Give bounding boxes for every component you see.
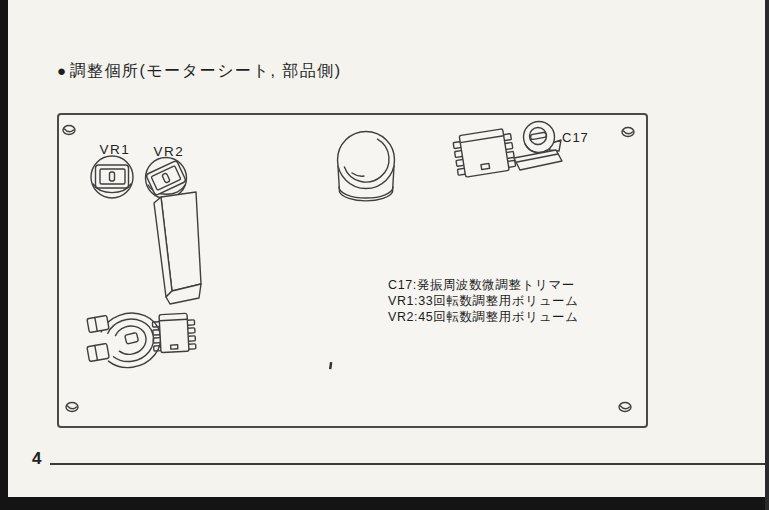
page-number: 4 <box>32 449 41 469</box>
board-diagram: VR1 VR2 C17 <box>0 0 769 510</box>
scan-edge-left <box>0 0 8 510</box>
mounting-hole-top-right <box>622 128 634 137</box>
component-trimmer-c17 <box>524 122 562 153</box>
vr2-label: VR2 <box>154 144 185 159</box>
note-vr2: VR2:45回転数調整用ボリューム <box>388 309 579 325</box>
mounting-hole-bottom-left <box>66 403 78 412</box>
scan-edge-bottom <box>0 497 769 510</box>
component-capacitor <box>338 132 395 201</box>
c17-label: C17 <box>562 130 589 145</box>
scan-edge-right <box>765 0 769 510</box>
vr1-label: VR1 <box>100 142 131 157</box>
component-ic-1 <box>452 128 516 179</box>
vr1-potentiometer <box>91 156 133 198</box>
footer-rule <box>50 463 769 465</box>
mounting-hole-bottom-right <box>619 403 631 412</box>
component-tall-box <box>154 192 201 304</box>
board-tick-mark <box>329 362 332 369</box>
adjustment-notes: C17:発振周波数微調整トリマー VR1:33回転数調整用ボリューム VR2:4… <box>388 277 579 325</box>
mounting-hole-top-left <box>63 126 75 135</box>
vr2-potentiometer <box>146 158 187 199</box>
component-coil <box>87 307 166 373</box>
note-c17: C17:発振周波数微調整トリマー <box>388 277 579 293</box>
manual-page: ●調整個所(モーターシート, 部品側) <box>0 0 769 510</box>
note-vr1: VR1:33回転数調整用ボリューム <box>388 293 579 309</box>
component-slab <box>514 150 562 170</box>
